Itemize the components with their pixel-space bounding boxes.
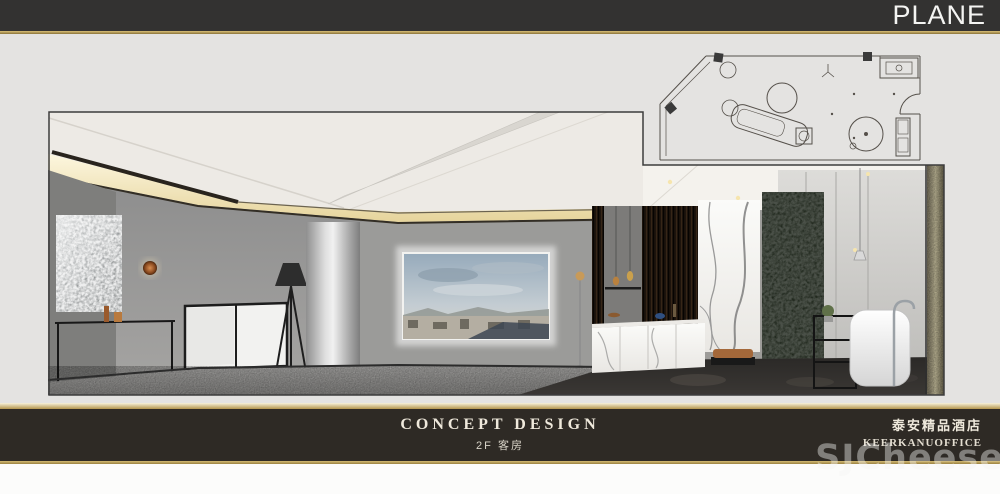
wall-sconce <box>143 261 157 275</box>
plan-wall-hatches <box>664 52 872 114</box>
concept-design-title: CONCEPT DESIGN <box>0 416 1000 434</box>
bathtub <box>850 310 910 386</box>
backlit-strip <box>926 165 944 395</box>
title-bar: PLANE <box>0 0 1000 31</box>
bench <box>711 349 755 365</box>
bar-unit <box>592 206 705 373</box>
project-name: 泰安精品酒店 <box>863 415 982 434</box>
living-area <box>48 112 643 395</box>
plant-pot <box>824 316 833 322</box>
plant <box>822 305 834 317</box>
marble-panel <box>698 200 760 352</box>
curved-column <box>306 222 360 369</box>
wall-art-panel <box>56 215 122 312</box>
watermark: SJCheese <box>815 438 1000 478</box>
low-cabinet <box>185 303 287 370</box>
page-title: PLANE <box>892 0 986 31</box>
tv-artwork <box>396 246 556 346</box>
interior-rendering <box>48 110 945 398</box>
presentation-slide: PLANE <box>0 0 1000 494</box>
gold-divider-top <box>0 31 1000 34</box>
